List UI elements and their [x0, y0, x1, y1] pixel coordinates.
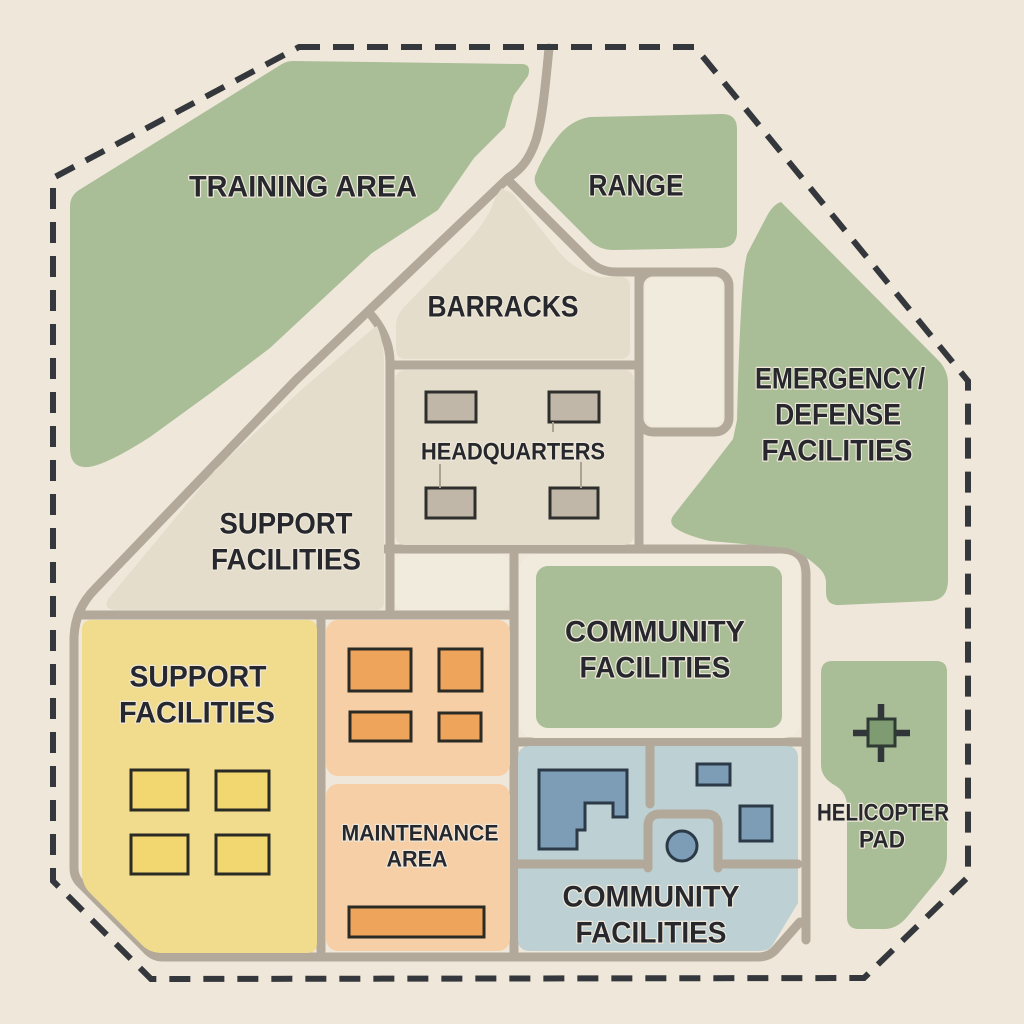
- svg-text:DEFENSE: DEFENSE: [775, 399, 901, 432]
- svg-text:TRAINING AREA: TRAINING AREA: [189, 171, 417, 204]
- svg-text:FACILITIES: FACILITIES: [211, 544, 361, 577]
- svg-text:COMMUNITY: COMMUNITY: [565, 616, 745, 649]
- svg-text:FACILITIES: FACILITIES: [580, 652, 731, 685]
- svg-text:MAINTENANCE: MAINTENANCE: [342, 821, 499, 846]
- svg-text:FACILITIES: FACILITIES: [119, 697, 275, 730]
- svg-text:FACILITIES: FACILITIES: [576, 917, 727, 950]
- svg-text:PAD: PAD: [859, 827, 905, 854]
- svg-text:FACILITIES: FACILITIES: [762, 435, 913, 468]
- svg-text:SUPPORT: SUPPORT: [220, 508, 353, 541]
- svg-text:HELICOPTER: HELICOPTER: [817, 800, 949, 827]
- svg-text:COMMUNITY: COMMUNITY: [563, 881, 740, 914]
- svg-text:RANGE: RANGE: [589, 170, 684, 203]
- svg-text:AREA: AREA: [387, 847, 448, 872]
- svg-text:BARRACKS: BARRACKS: [428, 291, 579, 324]
- svg-text:EMERGENCY/: EMERGENCY/: [755, 363, 926, 396]
- svg-text:SUPPORT: SUPPORT: [130, 661, 267, 694]
- svg-text:HEADQUARTERS: HEADQUARTERS: [421, 439, 605, 466]
